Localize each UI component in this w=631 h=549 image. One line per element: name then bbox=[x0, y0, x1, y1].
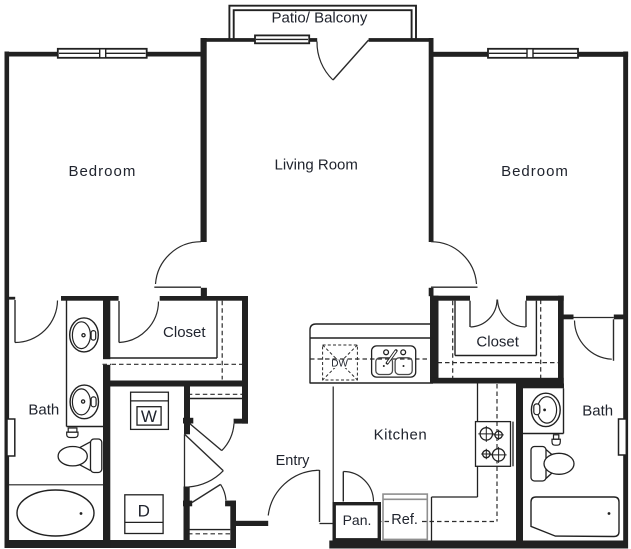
svg-text:Entry: Entry bbox=[276, 453, 311, 469]
svg-text:Closet: Closet bbox=[476, 334, 519, 351]
svg-text:Closet: Closet bbox=[163, 324, 206, 341]
svg-text:D: D bbox=[138, 501, 150, 520]
svg-text:Bath: Bath bbox=[582, 402, 613, 419]
svg-text:Bedroom: Bedroom bbox=[68, 163, 136, 180]
svg-text:Pan.: Pan. bbox=[343, 512, 372, 528]
svg-text:DW: DW bbox=[331, 358, 348, 369]
svg-text:Ref.: Ref. bbox=[391, 512, 418, 528]
svg-text:Living Room: Living Room bbox=[275, 157, 358, 174]
svg-text:Bedroom: Bedroom bbox=[501, 163, 569, 180]
svg-text:Bath: Bath bbox=[28, 402, 59, 419]
svg-text:W: W bbox=[141, 407, 157, 426]
svg-text:Kitchen: Kitchen bbox=[374, 427, 428, 444]
svg-text:Patio/ Balcony: Patio/ Balcony bbox=[272, 10, 368, 27]
